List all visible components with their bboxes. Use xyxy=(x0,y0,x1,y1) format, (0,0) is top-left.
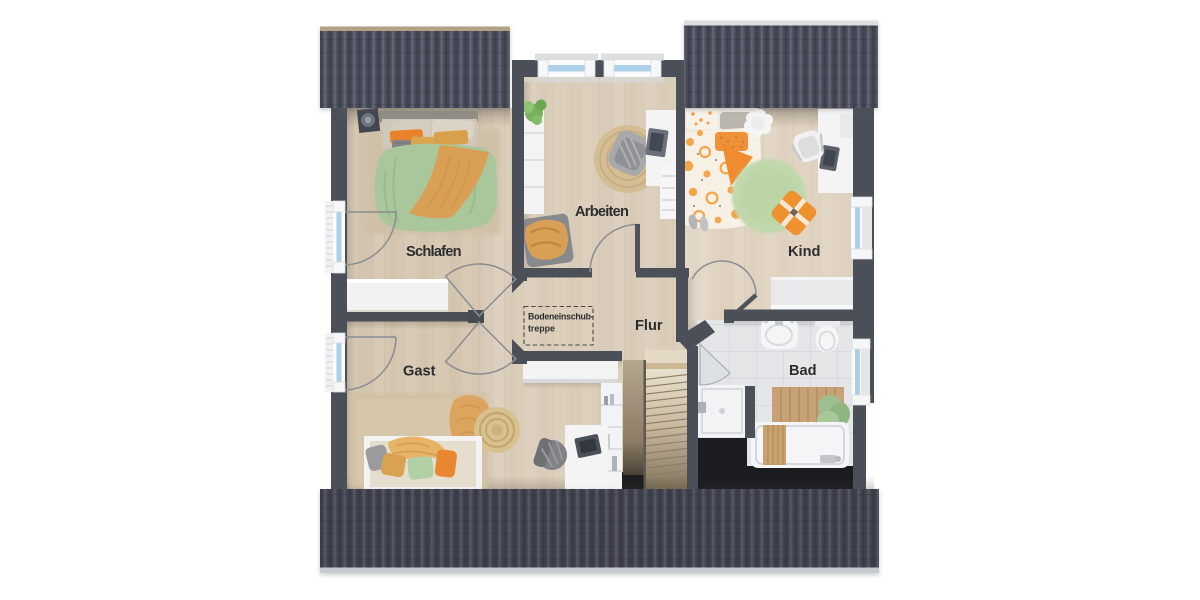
svg-text:Arbeiten: Arbeiten xyxy=(575,204,629,220)
svg-text:Gast: Gast xyxy=(403,364,436,380)
svg-text:Kind: Kind xyxy=(788,244,820,260)
svg-text:treppe: treppe xyxy=(528,324,555,334)
svg-text:Bodeneinschub-: Bodeneinschub- xyxy=(528,312,594,322)
svg-text:Flur: Flur xyxy=(635,318,663,334)
svg-text:Bad: Bad xyxy=(789,363,817,379)
svg-text:Schlafen: Schlafen xyxy=(406,244,462,260)
